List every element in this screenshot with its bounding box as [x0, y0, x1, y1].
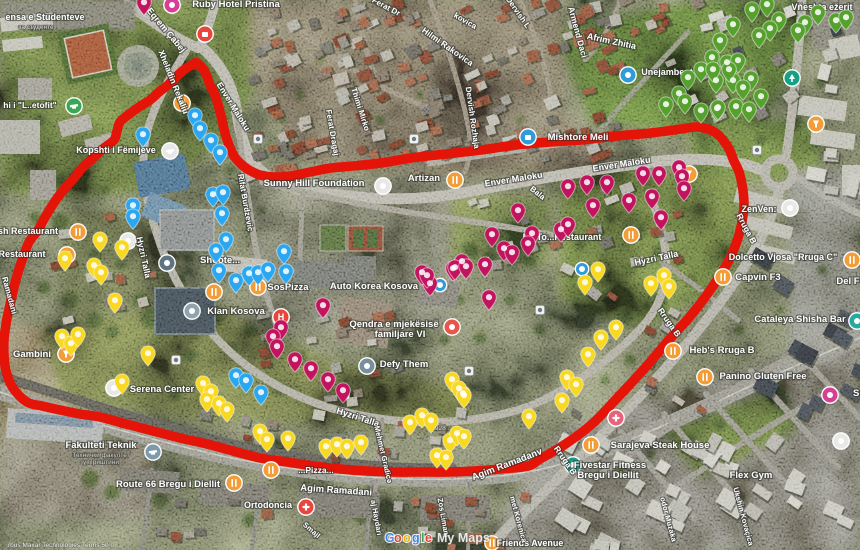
svg-text:familjare VI: familjare VI: [375, 329, 426, 340]
svg-text:Bregu i Diellit: Bregu i Diellit: [577, 470, 639, 481]
svg-text:o: o: [403, 531, 411, 545]
svg-text:Route 66 Bregu i Diellit: Route 66 Bregu i Diellit: [116, 479, 221, 490]
svg-text:Klan Kosova: Klan Kosova: [207, 306, 265, 317]
svg-text:Artizan: Artizan: [408, 173, 440, 184]
svg-text:Fakulteti Teknik: Fakulteti Teknik: [65, 440, 137, 451]
svg-text:Del F: Del F: [836, 276, 859, 287]
svg-text:Panino Gluten Free: Panino Gluten Free: [719, 371, 806, 382]
svg-text:Sarajeva Steak House: Sarajeva Steak House: [611, 440, 710, 451]
svg-text:hi i "L..etofit": hi i "L..etofit": [3, 100, 56, 110]
svg-text:у Приштини: у Приштини: [83, 459, 119, 466]
svg-text:Serena Center: Serena Center: [130, 384, 195, 395]
svg-text:Mishtore Meli: Mishtore Meli: [548, 132, 609, 143]
svg-text:l: l: [421, 531, 424, 545]
svg-text:e: e: [425, 531, 432, 545]
svg-text:sh Restaurant: sh Restaurant: [0, 226, 58, 236]
svg-text:ensa e Studenteve: ensa e Studenteve: [5, 12, 84, 22]
svg-text:rbus Maxar Technologies T: rbus Maxar Technologies Terms 50 m: [8, 542, 116, 549]
svg-text:Ruby Hotel Pristina: Ruby Hotel Pristina: [192, 0, 280, 10]
svg-text:Gambini: Gambini: [13, 349, 51, 360]
svg-text:Heb's Rruga B: Heb's Rruga B: [689, 345, 754, 356]
svg-text:Defy Them: Defy Them: [380, 359, 429, 370]
svg-text:Capvin F3: Capvin F3: [735, 272, 780, 283]
svg-text:Ortodoncia: Ortodoncia: [244, 500, 293, 510]
svg-text:Sum: Sum: [853, 388, 860, 399]
svg-text:Технички факултет: Технички факултет: [72, 452, 129, 459]
svg-text:My Maps: My Maps: [437, 531, 490, 545]
svg-text:Flex Gym: Flex Gym: [730, 470, 773, 481]
svg-text:Cataleya Shisha Bar: Cataleya Shisha Bar: [754, 314, 846, 325]
svg-text:g: g: [412, 531, 420, 545]
svg-text:Auto Korea Kosova: Auto Korea Kosova: [330, 281, 419, 292]
svg-text:Dolcetto Vjosa "Rruga C": Dolcetto Vjosa "Rruga C": [729, 252, 838, 262]
svg-text:SosPizza: SosPizza: [267, 282, 309, 293]
svg-text:...Pizza...: ...Pizza...: [298, 465, 333, 475]
svg-text:Friends Avenue: Friends Avenue: [497, 538, 564, 548]
svg-text:Sunny Hill Foundation: Sunny Hill Foundation: [264, 178, 365, 189]
svg-text:o: o: [394, 531, 402, 545]
svg-text:ZenVen:: ZenVen:: [741, 204, 776, 214]
svg-text:за студенте: за студенте: [18, 24, 54, 31]
svg-text:Restaurant: Restaurant: [0, 249, 46, 259]
